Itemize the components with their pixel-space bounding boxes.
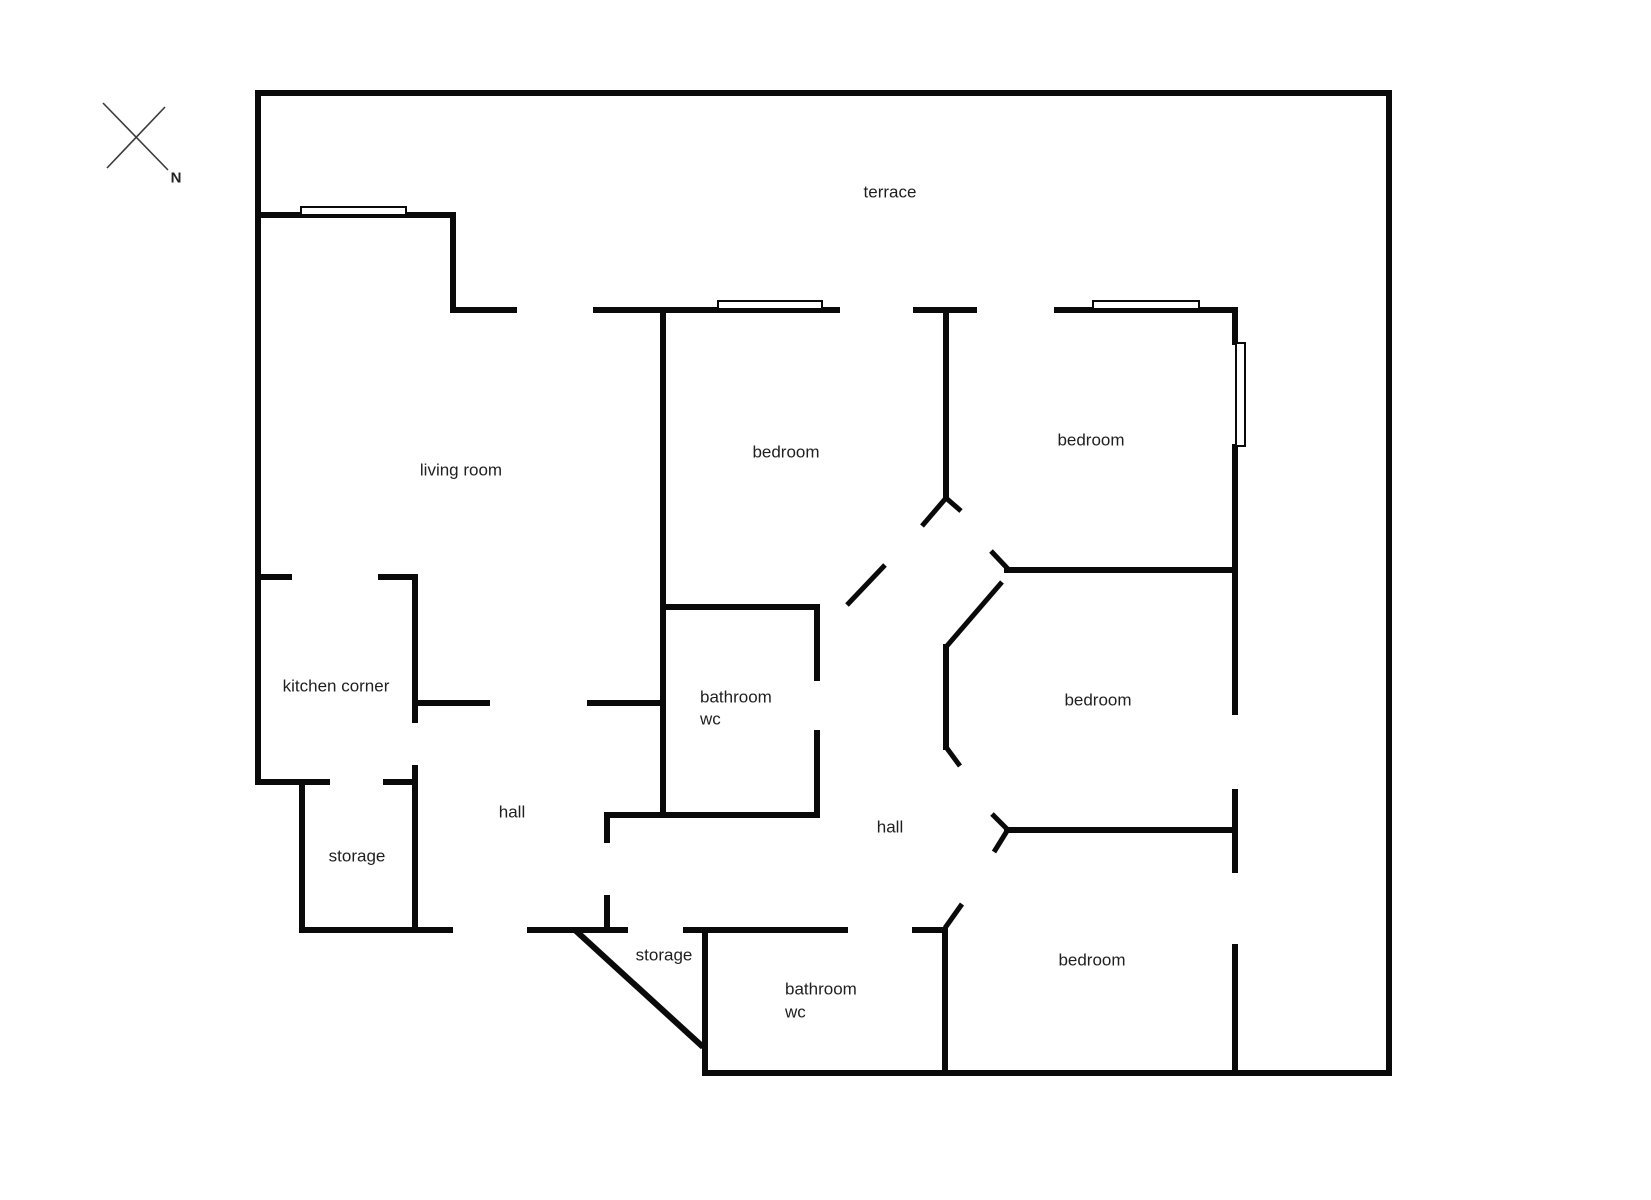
room-label-living-room: living room	[420, 462, 502, 479]
wall-bedroom2-bottom	[1004, 567, 1238, 573]
room-label-bedroom-3: bedroom	[1064, 692, 1131, 709]
room-label-terrace: terrace	[864, 184, 917, 201]
wall-hall1-door-jamb-lower	[604, 895, 610, 933]
wall-bedroom4-right-upper	[1232, 827, 1238, 873]
wall-hall1-top-left	[414, 700, 490, 706]
wall-bedroom4-left	[942, 927, 948, 1073]
wall-kitchen-bottom-right	[383, 779, 415, 785]
room-label-bedroom-2: bedroom	[1057, 432, 1124, 449]
wall-bedroom1-left	[660, 307, 666, 818]
wall-hall1-bottom	[527, 927, 628, 933]
room-label-bedroom-1: bedroom	[752, 444, 819, 461]
wall-bedroom4-right-lower	[1232, 944, 1238, 1076]
window-living-room	[300, 206, 407, 216]
wall-bathroom1-bottom	[604, 812, 818, 818]
room-label-bathroom-2-word: bathroom	[785, 981, 857, 998]
room-label-bathroom-1-wc: wc	[700, 711, 721, 728]
room-label-bedroom-4: bedroom	[1058, 952, 1125, 969]
wall-bedroom4-top-stub	[912, 927, 948, 933]
wall-bedroom3-right-upper	[1232, 567, 1238, 715]
room-label-storage-1: storage	[329, 848, 386, 865]
wall-living-top-stub	[450, 307, 517, 313]
bedroom1-jamb-tick-left	[922, 498, 946, 526]
bathroom2-door-tick	[945, 904, 962, 928]
wall-kitchen-bottom-left	[255, 779, 330, 785]
bedroom3-door-swing-upper	[946, 582, 1002, 647]
wall-bedroom1-right	[943, 307, 949, 500]
bedroom1-door-swing	[847, 565, 885, 605]
wall-storage1-bottom	[299, 927, 453, 933]
room-label-hall-1: hall	[499, 804, 525, 821]
wall-bathroom1-right-lower	[814, 730, 820, 818]
room-label-bathroom-2-wc: wc	[785, 1004, 806, 1021]
door-and-compass-lines	[0, 0, 1651, 1200]
wall-bedroom3-bottom	[1004, 827, 1238, 833]
window-bedroom1	[717, 300, 823, 310]
window-bedroom2-top	[1092, 300, 1200, 310]
room-label-storage-2: storage	[636, 947, 693, 964]
floor-plan: terraceliving roombedroombedroomkitchen …	[0, 0, 1651, 1200]
window-bedroom2-right	[1235, 342, 1246, 447]
room-label-kitchen-corner: kitchen corner	[283, 678, 390, 695]
room-label-hall-2: hall	[877, 819, 903, 836]
wall-outer-bottom	[702, 1070, 1392, 1076]
wall-bedroom2-right-upper	[1232, 307, 1238, 345]
wall-storage1-left	[299, 779, 305, 933]
wall-bedroom3-door-post	[943, 644, 949, 750]
wall-hall1-top-right	[587, 700, 666, 706]
bedroom3-jamb-tick-down	[994, 831, 1007, 852]
compass-north-label: N	[171, 170, 182, 187]
wall-kitchen-stub-left	[255, 574, 292, 580]
room-label-bathroom-1-word: bathroom	[700, 689, 772, 706]
wall-outer-left	[255, 90, 261, 785]
wall-outer-top	[255, 90, 1392, 96]
wall-living-step-vertical	[450, 212, 456, 313]
wall-bathroom1-top	[660, 604, 816, 610]
wall-outer-right	[1386, 90, 1392, 1076]
wall-bathroom1-right-upper	[814, 604, 820, 681]
wall-bedroom2-right-lower	[1232, 444, 1238, 573]
wall-kitchen-right-lower	[412, 765, 418, 933]
wall-bathroom2-left	[702, 927, 708, 1076]
